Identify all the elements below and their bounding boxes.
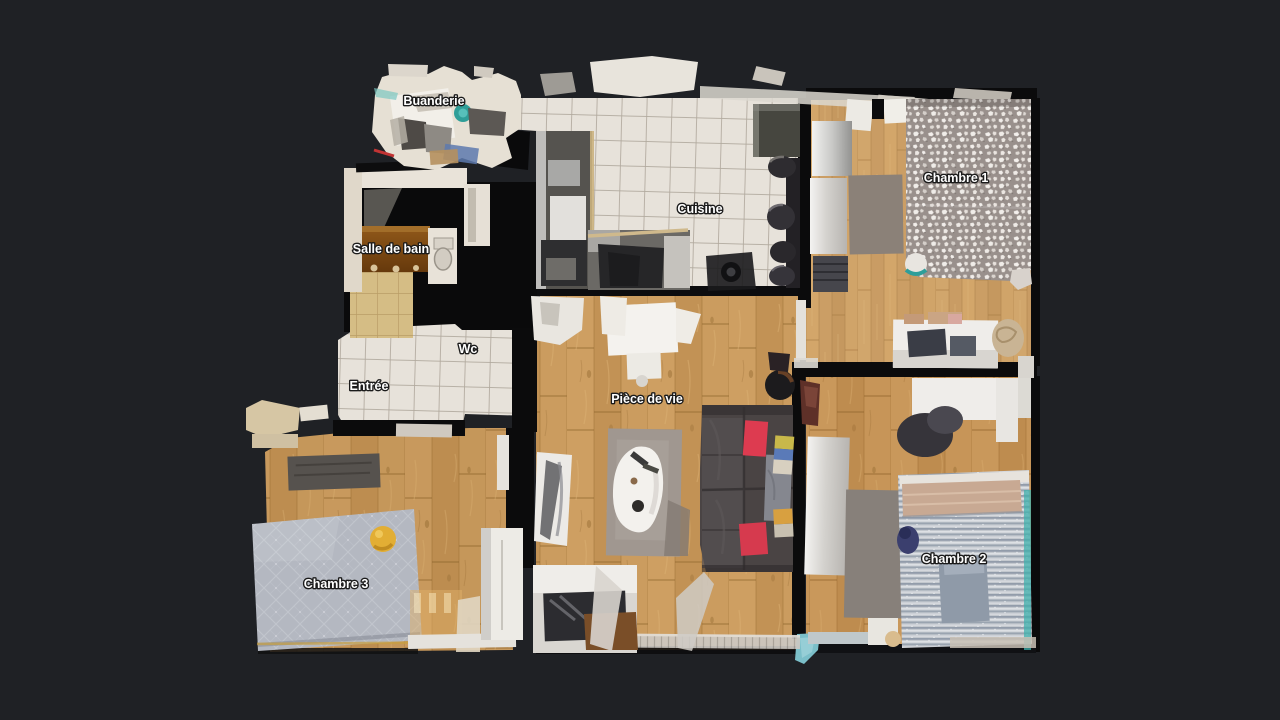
svg-text:Salle de bain: Salle de bain xyxy=(353,242,429,256)
svg-text:Chambre 2: Chambre 2 xyxy=(922,552,987,566)
svg-text:Entrée: Entrée xyxy=(350,379,389,393)
svg-text:Chambre 3: Chambre 3 xyxy=(304,577,369,591)
svg-text:Cuisine: Cuisine xyxy=(677,202,722,216)
svg-text:Wc: Wc xyxy=(459,342,478,356)
svg-text:Chambre 1: Chambre 1 xyxy=(924,171,989,185)
svg-text:Pièce de vie: Pièce de vie xyxy=(611,392,683,406)
svg-text:Buanderie: Buanderie xyxy=(403,94,464,108)
